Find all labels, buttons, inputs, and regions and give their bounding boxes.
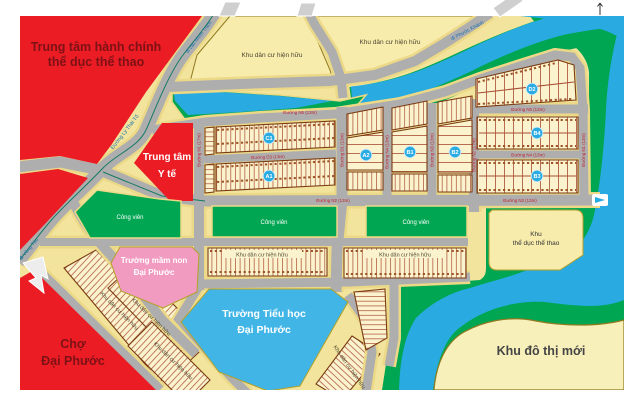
svg-text:Khu dân cư hiện hữu: Khu dân cư hiện hữu (359, 39, 420, 46)
svg-text:Trường Tiểu học: Trường Tiểu học (222, 308, 306, 320)
svg-text:thể dục thể thao: thể dục thể thao (513, 239, 560, 247)
svg-text:Đường N2 (13m): Đường N2 (13m) (316, 198, 350, 203)
svg-text:Đường N4 (13m): Đường N4 (13m) (511, 153, 545, 158)
svg-text:Đường N2 (17m): Đường N2 (17m) (472, 138, 477, 172)
svg-text:Trung tâm hành chính: Trung tâm hành chính (31, 40, 162, 54)
svg-text:Đường N1 (13m): Đường N1 (13m) (581, 133, 586, 167)
svg-text:Đường N5 (13m): Đường N5 (13m) (511, 107, 545, 112)
svg-text:Công viên: Công viên (260, 220, 287, 226)
svg-text:Đường N4 (13m): Đường N4 (13m) (385, 135, 390, 169)
svg-text:B2: B2 (451, 150, 458, 156)
svg-text:A2: A2 (362, 153, 369, 159)
svg-text:Đường N5 (13m): Đường N5 (13m) (283, 110, 317, 115)
svg-text:Y tế: Y tế (158, 168, 177, 180)
svg-text:thể dục thể thao: thể dục thể thao (48, 55, 145, 69)
svg-text:Đường N3 (13m): Đường N3 (13m) (430, 133, 435, 167)
svg-text:Khu dân cư hiện hữu: Khu dân cư hiện hữu (236, 253, 288, 259)
svg-text:Chợ: Chợ (60, 337, 86, 351)
svg-text:Trung tâm: Trung tâm (143, 152, 191, 163)
svg-text:B4: B4 (533, 131, 541, 137)
svg-text:Đường D1 (13m): Đường D1 (13m) (340, 133, 345, 167)
svg-text:Công viên: Công viên (116, 215, 143, 221)
svg-text:Trường mầm non: Trường mầm non (121, 256, 188, 265)
svg-text:Khu dân cư hiện hữu: Khu dân cư hiện hữu (241, 52, 302, 59)
svg-text:Đại Phước: Đại Phước (41, 354, 105, 368)
svg-text:Đại Phước: Đại Phước (134, 268, 175, 277)
svg-text:B3: B3 (533, 174, 540, 180)
svg-text:Khu dân cư hiện hữu: Khu dân cư hiện hữu (379, 253, 431, 259)
svg-text:Khu: Khu (530, 231, 542, 238)
svg-text:Đại Phước: Đại Phước (237, 324, 291, 336)
svg-text:D2: D2 (528, 87, 535, 93)
svg-text:Đường N1 (17m): Đường N1 (17m) (197, 133, 202, 167)
svg-text:Khu đô thị mới: Khu đô thị mới (497, 344, 586, 358)
svg-text:C1: C1 (265, 136, 272, 142)
svg-text:Công viên: Công viên (402, 220, 429, 226)
svg-text:Đường N3 (13m): Đường N3 (13m) (503, 198, 537, 203)
svg-text:B1: B1 (406, 150, 413, 156)
svg-text:A1: A1 (265, 174, 272, 180)
